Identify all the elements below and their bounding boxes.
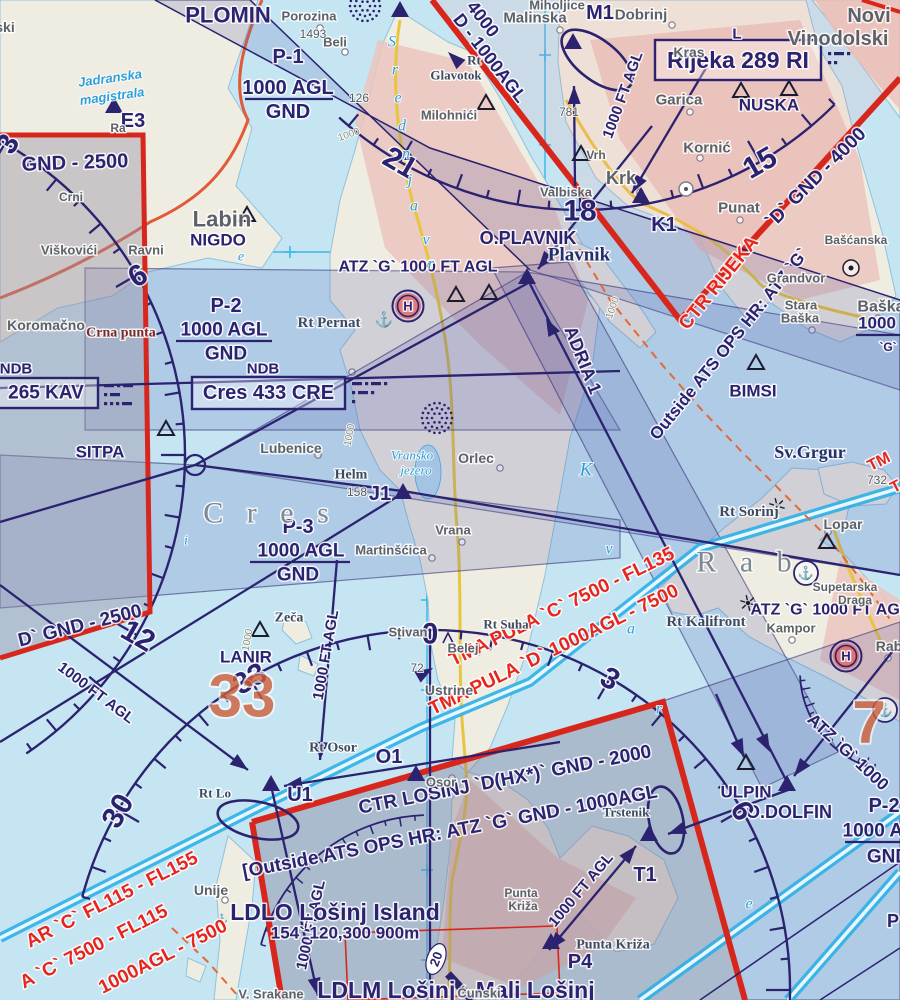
grid-label: 33 [209,663,276,730]
spot-label: 158 [347,485,367,499]
ndb-dots-icon [424,407,427,410]
ndb-dots-icon [438,421,441,424]
cape-label: Rt Osor [309,741,357,756]
compass-rose-tick [176,424,184,425]
town-label: Punat [718,200,760,217]
apt-label: LDLM Lošinj - Mali Lošinj [317,977,594,1000]
nav-label: J1 [369,483,391,505]
town-label: Dobrinj [615,7,668,24]
nav-label: `G` [879,340,896,354]
morse-dot [104,393,107,396]
ndb-dots-icon [366,9,369,12]
ndb-dots-icon [450,412,453,415]
wtr-label: K [579,460,594,481]
cape-label: Rt Lo [199,786,231,801]
town-label: Punta [504,886,538,900]
ndb-dots-icon [450,422,453,425]
compass-rose-tick [781,959,789,960]
town-label: Rab [876,638,900,654]
nav-label: T1 [633,864,656,886]
nav-label: PLOMIN [185,3,271,28]
ndb-dots-icon [443,404,446,407]
nav-label: NUSKA [739,96,799,115]
cape-label: Rt [467,53,481,68]
ndb-dots-icon [451,417,454,420]
nav-label: 1000 [858,314,896,333]
wtr-label: v [605,541,613,558]
nav-label: P-2 [868,795,899,817]
town-label: Vrh [586,148,605,162]
nav-label: 1000 AGL [181,320,268,341]
town-label: Koromačno [7,317,85,333]
town-label: Vinodolski [788,28,889,50]
village-dot [342,49,348,55]
town-label: Ra [110,121,126,135]
town-label: Baška [781,311,820,326]
wtr-label: i [184,534,188,549]
capeR-label: Crna punta [86,326,156,341]
ndb-dots-icon [427,422,430,425]
wtr-label: r [656,701,663,718]
town-label: Orlec [458,450,494,466]
nav-label: P-2 [210,295,241,317]
cape-label: Glavotok [430,68,482,83]
cape-label: Punta Križa [576,938,650,953]
morse-dot [352,400,355,403]
ndb-dots-icon [433,402,436,405]
ndb-dots-icon [356,18,359,21]
town-label: Krk [606,168,637,188]
wtr-label: v [422,232,430,249]
wtr-label: j [406,172,413,189]
wtr-label: Vransko [391,448,434,463]
ndb-dots-icon [433,421,436,424]
morse-dash [834,52,844,55]
town-label: Milohnići [421,108,477,123]
wtr-label: S [388,34,396,51]
ndb-dots-icon [361,19,364,22]
ndb-dots-icon [371,18,374,21]
beacon-icon [849,266,854,271]
town-label: Beli [323,35,347,50]
morse-dash [104,384,114,387]
spot-label: 781 [559,105,579,119]
town-label: Malinska [503,10,567,27]
morse-dash [371,382,381,385]
ndb-dots-icon [428,430,431,433]
town-label: Martinšćica [355,543,427,558]
morse-dot [365,382,368,385]
ndb-dots-icon [378,10,381,13]
isl-label: C r e s [203,497,337,530]
nav-label: P-1 [272,46,303,68]
morse-dash [110,393,120,396]
town-label: Porozina [282,9,338,24]
ndb-dots-icon [359,13,362,16]
town-label: Stivan [388,625,427,640]
ndb-dots-icon [369,5,372,8]
morse-dot [116,402,119,405]
ndb-dots-icon [366,0,369,3]
ndb-dots-icon [361,0,364,3]
nav-label: SITPA [76,443,125,462]
ndb-dots-icon [433,431,436,434]
cape-label: Helm [335,468,368,483]
nav-label: P4 [568,951,593,973]
town-label: Osor [426,775,456,790]
wtr-label: d [398,118,407,135]
nav-label: 1000 AGL [242,77,334,99]
town-label: Unije [194,882,228,898]
ndb-dots-icon [422,412,425,415]
compass-rose-tick [176,486,184,487]
helipad-icon: H [841,649,850,664]
nav-label: NDB [0,361,32,378]
ndb-dots-icon [426,417,429,420]
nav-label: GND [266,101,310,123]
ndb-dots-icon [436,407,439,410]
ndb-dots-icon [433,412,436,415]
spot-label: 1493 [300,27,327,41]
ndb-dots-icon [427,412,430,415]
town-label: Vrana [435,523,471,538]
town-label: Ravni [128,243,163,258]
town-label: Kras [673,44,704,60]
islN-label: Sv.Grgur [774,442,846,462]
ndb-dots-icon [424,426,427,429]
morse-dash [123,384,133,387]
ndb-dots-icon [364,15,367,18]
nav-label: K1 [651,214,677,236]
morse-dot [117,384,120,387]
ndb-dots-icon [443,430,446,433]
anchor-circle-icon: ⚓ [798,566,814,581]
morse-dot [104,402,107,405]
ndb-dots-icon [447,426,450,429]
town-label: Garica [656,92,703,109]
anchor-icon: ⚓ [375,311,394,329]
town-label: Supetarska [813,580,878,594]
ndb-dots-icon [349,5,352,8]
nav-label: GND [205,344,247,365]
ndb-dots-icon [350,10,353,13]
ndb-dots-icon [379,5,382,8]
nav-label: U1 [287,784,313,806]
ndb-dots-icon [438,402,441,405]
ndb-dots-icon [422,422,425,425]
ndb-dots-icon [441,425,444,428]
town-label: Križa [508,899,538,913]
ndb-dots-icon [375,14,378,17]
morse-dash [122,402,132,405]
town-label: Kampor [766,621,815,636]
morse-dot [828,61,831,64]
cape-label: Trstenik [603,805,650,820]
ndb-dots-icon [428,404,431,407]
cape-label: Zeča [275,611,304,626]
ndb-dots-icon [431,425,434,428]
nav-label: P [887,911,899,931]
spot-label: 732 [867,473,887,487]
ndb-dots-icon [372,10,375,13]
apt-label: LDLO Lošinj Island [230,899,440,925]
spot-label: 72 [410,661,424,675]
nav-label: O1 [376,746,403,768]
town-label: Viškovići [41,243,97,258]
cape-label: Rt Suha [483,617,529,632]
ndb-dots-icon [441,417,444,420]
morse-dot [384,382,387,385]
ndb-dots-icon [361,9,364,12]
town-label: Ustrine [425,682,473,698]
cape-label: Rt Sorinj [719,504,779,520]
ndb-dots-icon [441,408,444,411]
apt-label: 154` 120,300 900m [271,924,419,943]
vfr-chart-canvas: 265 KAVCres 433 CRERijeka 289 RIHH⚓⚓⚓⚓20… [0,0,900,1000]
ndb-dots-icon [354,5,357,8]
wtr-label: r [392,62,399,79]
navaid-box-label: 265 KAV [8,383,84,404]
ndb-dots-icon [369,13,372,16]
town-label: Lopar [824,516,863,532]
ndb-dots-icon [438,412,441,415]
town-label: Novi [847,5,890,27]
ndb-dots-icon [431,417,434,420]
ndb-dots-icon [447,407,450,410]
wtr-label: n [402,146,410,163]
town-label: V. Srakane [238,987,303,1000]
nav-label: NDB [247,361,280,378]
morse-dot [834,61,837,64]
airport-circle-icon [684,187,688,191]
morse-dash [358,391,368,394]
wtr-label: e [238,250,244,265]
town-label: Martinski [0,19,15,35]
ndb-dots-icon [431,408,434,411]
grid-label: 7 [852,689,885,756]
isl-label: R a b [696,546,799,579]
morse-dot [352,391,355,394]
spot-label: 126 [349,91,369,105]
town-label: Crni [59,190,83,204]
nav-label: L [732,26,741,43]
ndb-dots-icon [421,417,424,420]
ndb-dots-icon [446,417,449,420]
nav-label: GND - 2500 [21,150,128,176]
morse-dot [828,52,831,55]
town-label: Grandvor [767,271,826,286]
cape-label: Rt Kalifront [666,614,745,630]
wtr-label: a [627,621,635,638]
ndb-dots-icon [352,14,355,17]
town-label: Draga [838,593,872,607]
nav-label: 1000 AGL [843,821,900,842]
wtr-label: a [410,198,418,215]
ndb-dots-icon [359,5,362,8]
town-label: Baška [857,299,900,316]
ndb-dots-icon [366,19,369,22]
morse-dot [371,391,374,394]
ndb-dots-icon [444,412,447,415]
wtr-label: r [428,256,435,273]
vfr-chart: 265 KAVCres 433 CRERijeka 289 RIHH⚓⚓⚓⚓20… [0,0,900,1000]
nav-label: O.DOLFIN [746,802,832,822]
town-label: Belej [447,641,478,656]
wtr-label: e [745,896,752,913]
morse-dot [110,402,113,405]
nav-label: NIGDO [190,231,246,250]
wtr-label: e [394,90,401,107]
morse-dot [847,52,850,55]
ctrl-label: ATZ `G` 1000 FT AGL [750,602,900,619]
village-dot [789,637,795,643]
nav-label: 1000 AGL [258,541,345,562]
town-label: Bašćanska [825,233,888,247]
town-label: Labin [193,207,252,232]
compass-rose-tick [461,631,462,639]
wtr-label: jezero [398,463,432,478]
islN-label: Plavnik [548,245,611,266]
town-label: Kornić [683,140,731,157]
nav-label: ATZ `G` 1000 FT AGL [338,259,497,276]
cape-label: Rt Pernat [298,315,361,331]
ndb-dots-icon [374,5,377,8]
ndb-dots-icon [355,10,358,13]
town-label: Valbiska [540,185,593,200]
nav-label: GND [867,847,900,868]
ndb-dots-icon [444,422,447,425]
ndb-dots-icon [438,431,441,434]
compass-rose-tick [611,201,612,209]
morse-dash [352,382,362,385]
town-label: Ćunski [457,986,500,1000]
navaid-box-label: Cres 433 CRE [203,382,334,404]
ndb-dots-icon [436,427,439,430]
nav-label: M1 [586,2,614,24]
nav-label: BIMSI [729,382,776,401]
nav-label: GND [277,565,319,586]
helipad-icon: H [403,299,412,314]
compass-rose-tick [549,201,550,209]
town-label: Lubenice [260,440,322,456]
